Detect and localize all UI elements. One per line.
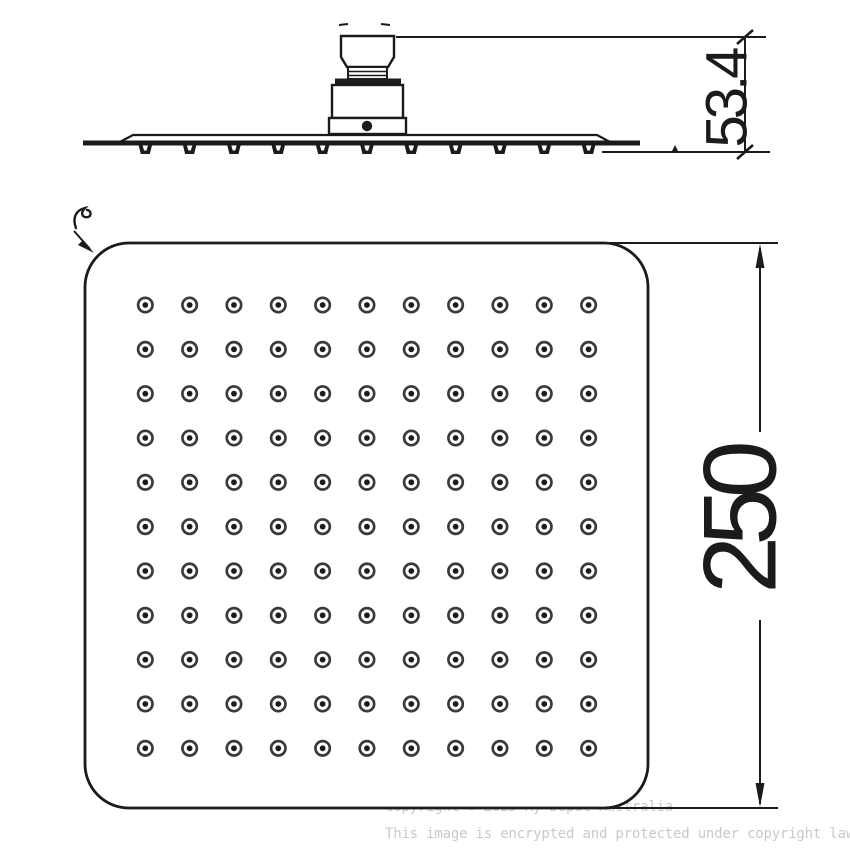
nozzle-center-dot xyxy=(541,612,547,618)
nozzle-center-dot xyxy=(586,612,592,618)
nozzle-center-dot xyxy=(541,391,547,397)
nozzle-center-dot xyxy=(142,524,148,530)
nozzle-center-dot xyxy=(453,524,459,530)
nozzle-center-dot xyxy=(364,435,370,441)
technical-drawing-page: Copyright © 2025 My Depot Australia xyxy=(0,0,850,850)
nozzle-center-dot xyxy=(231,391,237,397)
width-dimension-value: 250 xyxy=(682,450,801,594)
nozzle-center-dot xyxy=(275,568,281,574)
nozzle-center-dot xyxy=(187,657,193,663)
nozzle-center-dot xyxy=(187,479,193,485)
nozzle-center-dot xyxy=(275,435,281,441)
nozzle-center-dot xyxy=(453,479,459,485)
nozzle-center-dot xyxy=(497,745,503,751)
nozzle-center-dot xyxy=(364,701,370,707)
nozzle-center-dot xyxy=(187,524,193,530)
corner-leader-arrowhead xyxy=(78,240,94,253)
corner-leader xyxy=(74,208,94,253)
nozzle-center-dot xyxy=(187,568,193,574)
nozzle-center-dot xyxy=(586,657,592,663)
nozzle-center-dot xyxy=(408,435,414,441)
width-dim-arrow-up xyxy=(756,244,765,268)
nozzle-center-dot xyxy=(586,701,592,707)
nozzle-center-dot xyxy=(187,435,193,441)
nozzle-center-dot xyxy=(231,302,237,308)
nozzle-center-dot xyxy=(586,346,592,352)
nozzle-center-dot xyxy=(142,701,148,707)
connector-nut xyxy=(341,36,394,67)
nozzle-center-dot xyxy=(275,302,281,308)
nozzle-center-dot xyxy=(142,391,148,397)
nozzle-center-dot xyxy=(364,745,370,751)
nozzle-center-dot xyxy=(408,745,414,751)
nozzle-center-dot xyxy=(541,701,547,707)
water-inlet-connector xyxy=(329,24,406,134)
nozzle-center-dot xyxy=(497,479,503,485)
nozzle-center-dot xyxy=(142,745,148,751)
nozzle-center-dot xyxy=(408,568,414,574)
nozzle-center-dot xyxy=(187,391,193,397)
nozzle-center-dot xyxy=(586,391,592,397)
nozzle-center-dot xyxy=(453,568,459,574)
nozzle-center-dot xyxy=(320,391,326,397)
face-view xyxy=(74,208,778,808)
nozzle-center-dot xyxy=(320,524,326,530)
nozzle-center-dot xyxy=(231,435,237,441)
nozzle-center-dot xyxy=(320,612,326,618)
nozzle-center-dot xyxy=(364,346,370,352)
nozzle-center-dot xyxy=(586,524,592,530)
nozzle-center-dot xyxy=(320,435,326,441)
nozzle-center-dot xyxy=(187,612,193,618)
nozzle-center-dot xyxy=(142,479,148,485)
nozzle-center-dot xyxy=(497,391,503,397)
nozzle-center-dot xyxy=(231,612,237,618)
nozzle-center-dot xyxy=(142,612,148,618)
nozzle-center-dot xyxy=(586,479,592,485)
nozzle-center-dot xyxy=(497,346,503,352)
nozzle-center-dot xyxy=(497,435,503,441)
nozzle-center-dot xyxy=(320,745,326,751)
nozzle-center-dot xyxy=(453,612,459,618)
nozzle-center-dot xyxy=(586,302,592,308)
nozzle-center-dot xyxy=(231,701,237,707)
nozzle-center-dot xyxy=(275,612,281,618)
nozzle-center-dot xyxy=(320,701,326,707)
nozzle-center-dot xyxy=(408,612,414,618)
nozzle-center-dot xyxy=(541,346,547,352)
nozzle-center-dot xyxy=(497,657,503,663)
side-view xyxy=(83,24,770,159)
nozzle-center-dot xyxy=(408,657,414,663)
nozzle-center-dot xyxy=(541,479,547,485)
flange-screw-dot xyxy=(362,121,372,131)
nozzle-center-dot xyxy=(497,701,503,707)
nozzle-center-dot xyxy=(275,524,281,530)
nozzle-center-dot xyxy=(541,302,547,308)
nozzle-center-dot xyxy=(231,657,237,663)
nozzle-center-dot xyxy=(408,479,414,485)
nozzle-center-dot xyxy=(320,479,326,485)
corner-leader-squiggle xyxy=(74,208,90,228)
nozzle-center-dot xyxy=(497,524,503,530)
nozzle-center-dot xyxy=(408,701,414,707)
nozzle-center-dot xyxy=(586,568,592,574)
nozzle-center-dot xyxy=(187,346,193,352)
nozzle-center-dot xyxy=(541,524,547,530)
nozzle-center-dot xyxy=(142,435,148,441)
nozzle-center-dot xyxy=(320,346,326,352)
nozzle-center-dot xyxy=(142,302,148,308)
nozzle-center-dot xyxy=(586,745,592,751)
nozzle-center-dot xyxy=(187,701,193,707)
nozzle-center-dot xyxy=(320,302,326,308)
nozzle-center-dot xyxy=(408,524,414,530)
width-dim-arrow-down xyxy=(756,783,765,807)
nozzle-center-dot xyxy=(231,346,237,352)
nozzle-center-dot xyxy=(364,657,370,663)
height-dimension-value: 53.4 xyxy=(694,51,761,148)
nozzle-center-dot xyxy=(453,346,459,352)
nozzle-center-dot xyxy=(142,568,148,574)
nozzle-center-dot xyxy=(453,435,459,441)
height-dim-small-arrow xyxy=(671,145,679,153)
nozzle-center-dot xyxy=(497,612,503,618)
nozzle-center-dot xyxy=(453,657,459,663)
nozzle-center-dot xyxy=(364,568,370,574)
nozzle-center-dot xyxy=(275,391,281,397)
nozzle-center-dot xyxy=(408,391,414,397)
nozzle-center-dot xyxy=(142,346,148,352)
nozzle-center-dot xyxy=(497,302,503,308)
nozzle-center-dot xyxy=(497,568,503,574)
nozzle-center-dot xyxy=(453,391,459,397)
nozzle-center-dot xyxy=(453,701,459,707)
nozzle-center-dot xyxy=(541,435,547,441)
nozzle-center-dot xyxy=(320,568,326,574)
nozzle-center-dot xyxy=(453,745,459,751)
nozzle-center-dot xyxy=(541,657,547,663)
connector-body xyxy=(332,85,403,118)
connector-collar xyxy=(348,67,387,79)
nozzle-center-dot xyxy=(541,745,547,751)
nozzle-center-dot xyxy=(275,479,281,485)
watermark-protection-text: This image is encrypted and protected un… xyxy=(385,826,850,842)
nozzle-center-dot xyxy=(408,302,414,308)
nozzle-center-dot xyxy=(453,302,459,308)
nozzle-center-dot xyxy=(275,346,281,352)
nozzle-center-dot xyxy=(187,302,193,308)
cropped-pipe-dashes xyxy=(339,24,390,25)
nozzle-center-dot xyxy=(275,701,281,707)
nozzle-center-dot xyxy=(231,524,237,530)
nozzle-center-dot xyxy=(320,657,326,663)
nozzle-center-dot xyxy=(231,479,237,485)
nozzle-center-dot xyxy=(364,524,370,530)
nozzle-center-dot xyxy=(275,745,281,751)
nozzle-center-dot xyxy=(231,745,237,751)
nozzle-center-dot xyxy=(142,657,148,663)
nozzle-center-dot xyxy=(364,391,370,397)
nozzle-center-dot xyxy=(231,568,237,574)
nozzle-center-dot xyxy=(541,568,547,574)
nozzle-center-dot xyxy=(364,302,370,308)
nozzle-center-dot xyxy=(187,745,193,751)
nozzle-center-dot xyxy=(408,346,414,352)
nozzle-center-dot xyxy=(275,657,281,663)
nozzle-center-dot xyxy=(586,435,592,441)
nozzle-center-dot xyxy=(364,612,370,618)
nozzle-center-dot xyxy=(364,479,370,485)
